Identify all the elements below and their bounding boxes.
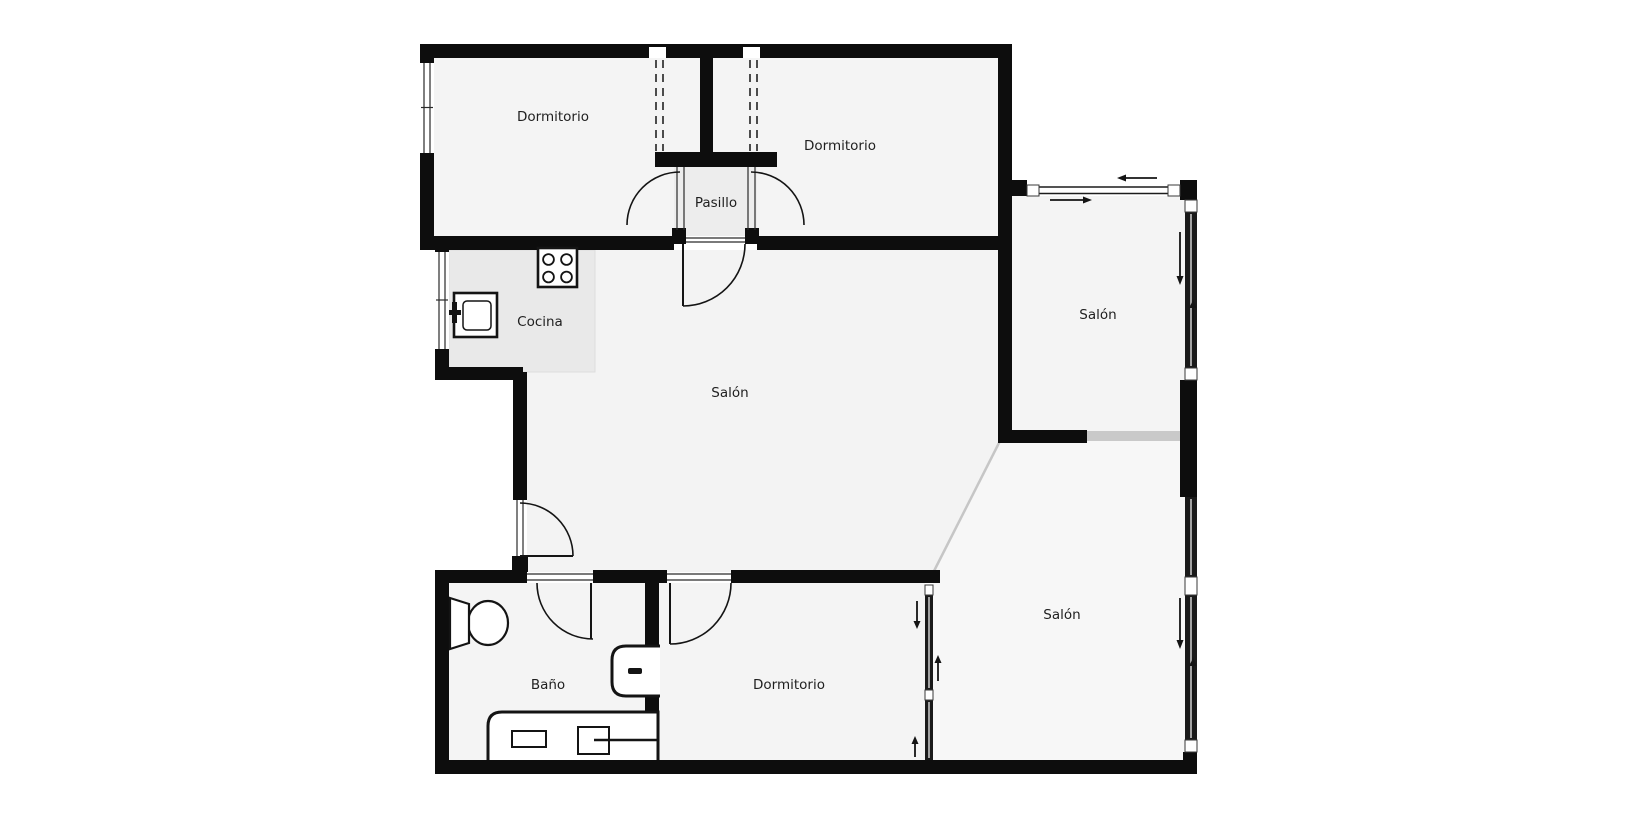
toilet-icon — [450, 598, 508, 649]
wall-kitchen-step — [435, 367, 523, 380]
washbasin-icon — [612, 646, 660, 696]
window-cocina — [435, 252, 449, 349]
floor-dormitorio-bottom — [659, 583, 925, 760]
room-label-dormitorio-top-left: Dormitorio — [517, 109, 589, 125]
top-wall-notch-left — [649, 47, 666, 58]
wall-bedroom-divider — [700, 58, 713, 167]
floor-dormitorio-top-left — [434, 58, 700, 236]
floor-plan-svg: Dormitorio Dormitorio Pasillo Cocina Sal… — [0, 0, 1638, 840]
wall-terrace-corner-left — [998, 180, 1027, 196]
stove-icon — [538, 248, 577, 287]
wall-bottom — [435, 760, 1197, 774]
wall-bottomsection-top-3 — [731, 570, 940, 583]
wall-bottom-right-corner — [1183, 752, 1197, 774]
top-wall-notch-right — [743, 47, 760, 58]
slide-left-arrow — [1117, 175, 1126, 182]
wall-salon-divider — [998, 430, 1087, 443]
room-label-salon-top-right: Salón — [1079, 307, 1116, 323]
wall-bottomsection-top-2 — [593, 570, 667, 583]
room-floors — [434, 58, 1185, 760]
wall-bano-left — [435, 570, 449, 774]
room-label-bano: Baño — [531, 677, 565, 693]
room-label-salon-central: Salón — [711, 385, 748, 401]
room-label-dormitorio-top-right: Dormitorio — [804, 138, 876, 154]
wall-top — [420, 44, 1012, 58]
window-dormitorio-top-left — [420, 63, 434, 153]
wall-terrace-corner-right — [1180, 180, 1197, 200]
room-label-salon-bottom-right: Salón — [1043, 607, 1080, 623]
room-label-dormitorio-bottom: Dormitorio — [753, 677, 825, 693]
kitchen-sink-icon — [449, 293, 497, 337]
glass-divider-between-salones — [1087, 431, 1180, 441]
sliding-door-top-rail — [1027, 185, 1180, 196]
floor-plan-canvas: Dormitorio Dormitorio Pasillo Cocina Sal… — [0, 0, 1638, 840]
wall-pasillo-top — [655, 152, 777, 167]
room-label-pasillo: Pasillo — [695, 195, 737, 211]
wall-pasillo-jamb-right — [745, 228, 759, 244]
wall-pasillo-jamb-left — [672, 228, 686, 244]
wall-right-mid-block — [1180, 380, 1197, 497]
bathtub-icon — [488, 712, 658, 760]
wall-salon-west — [513, 372, 527, 500]
wall-topsection-bottom-right — [757, 236, 1012, 250]
room-label-cocina: Cocina — [517, 314, 563, 330]
